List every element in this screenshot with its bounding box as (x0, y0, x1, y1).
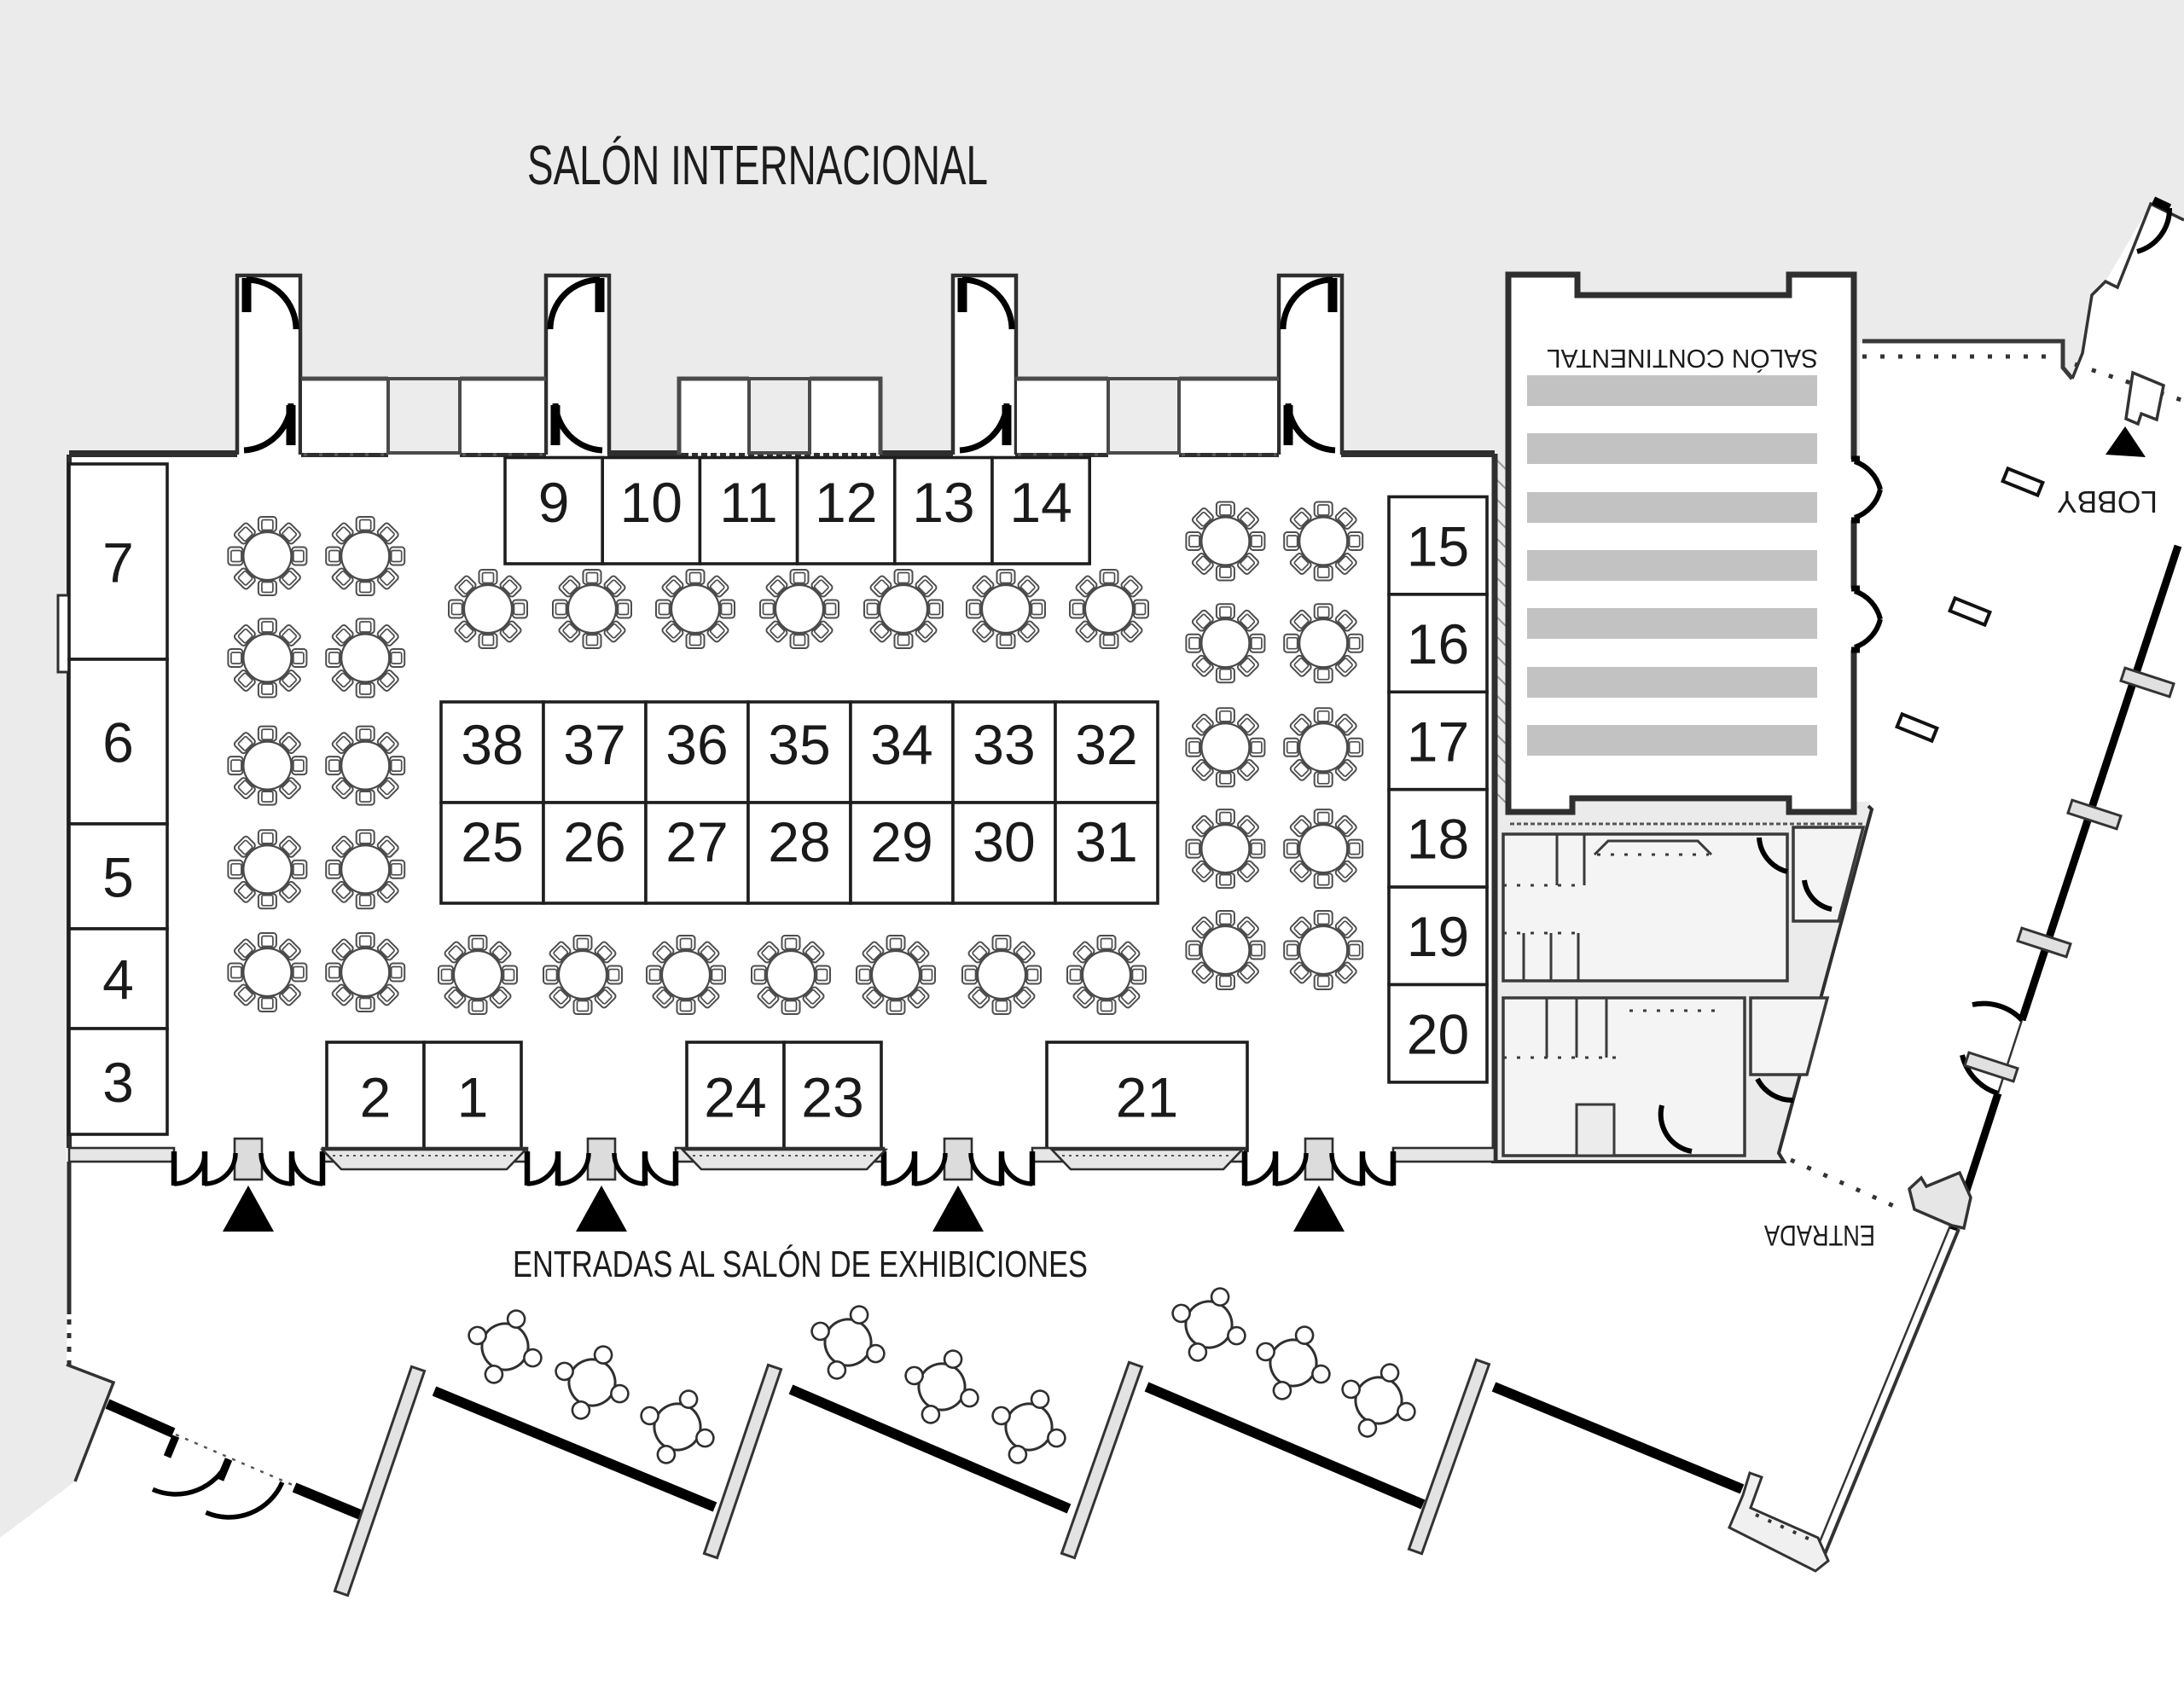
svg-text:38: 38 (461, 713, 523, 776)
svg-text:2: 2 (360, 1065, 392, 1128)
svg-text:LOBBY: LOBBY (2057, 484, 2158, 519)
svg-text:26: 26 (563, 810, 625, 873)
svg-text:9: 9 (538, 471, 570, 534)
svg-text:12: 12 (815, 471, 877, 534)
svg-text:16: 16 (1407, 612, 1469, 675)
svg-text:5: 5 (102, 845, 134, 908)
svg-text:3: 3 (102, 1051, 134, 1114)
svg-text:32: 32 (1075, 713, 1137, 776)
svg-text:SALÓN INTERNACIONAL: SALÓN INTERNACIONAL (527, 134, 988, 196)
svg-text:15: 15 (1407, 515, 1469, 578)
svg-text:33: 33 (973, 713, 1035, 776)
svg-text:10: 10 (620, 471, 682, 534)
svg-text:23: 23 (801, 1065, 863, 1128)
svg-text:27: 27 (665, 810, 728, 873)
svg-text:11: 11 (719, 471, 778, 534)
svg-text:ENTRADA: ENTRADA (1764, 1219, 1875, 1251)
svg-text:24: 24 (704, 1065, 766, 1128)
svg-text:29: 29 (870, 810, 932, 873)
svg-text:37: 37 (563, 713, 625, 776)
svg-text:28: 28 (768, 810, 830, 873)
svg-text:SALÓN CONTINENTAL: SALÓN CONTINENTAL (1547, 344, 1818, 374)
svg-text:35: 35 (768, 713, 830, 776)
svg-text:36: 36 (665, 713, 728, 776)
svg-text:ENTRADAS AL SALÓN DE EXHIBICIO: ENTRADAS AL SALÓN DE EXHIBICIONES (513, 1244, 1088, 1285)
svg-text:19: 19 (1407, 905, 1469, 968)
svg-text:17: 17 (1407, 710, 1469, 773)
svg-text:25: 25 (461, 810, 523, 873)
svg-text:14: 14 (1009, 471, 1072, 534)
svg-text:1: 1 (457, 1065, 489, 1128)
svg-text:21: 21 (1116, 1065, 1178, 1128)
svg-text:7: 7 (102, 530, 134, 594)
svg-text:4: 4 (102, 948, 134, 1011)
svg-text:13: 13 (912, 471, 974, 534)
svg-text:6: 6 (102, 710, 134, 774)
svg-text:31: 31 (1075, 810, 1137, 873)
svg-text:18: 18 (1407, 808, 1469, 871)
svg-text:30: 30 (973, 810, 1035, 873)
svg-text:34: 34 (870, 713, 932, 776)
svg-text:20: 20 (1407, 1003, 1469, 1066)
